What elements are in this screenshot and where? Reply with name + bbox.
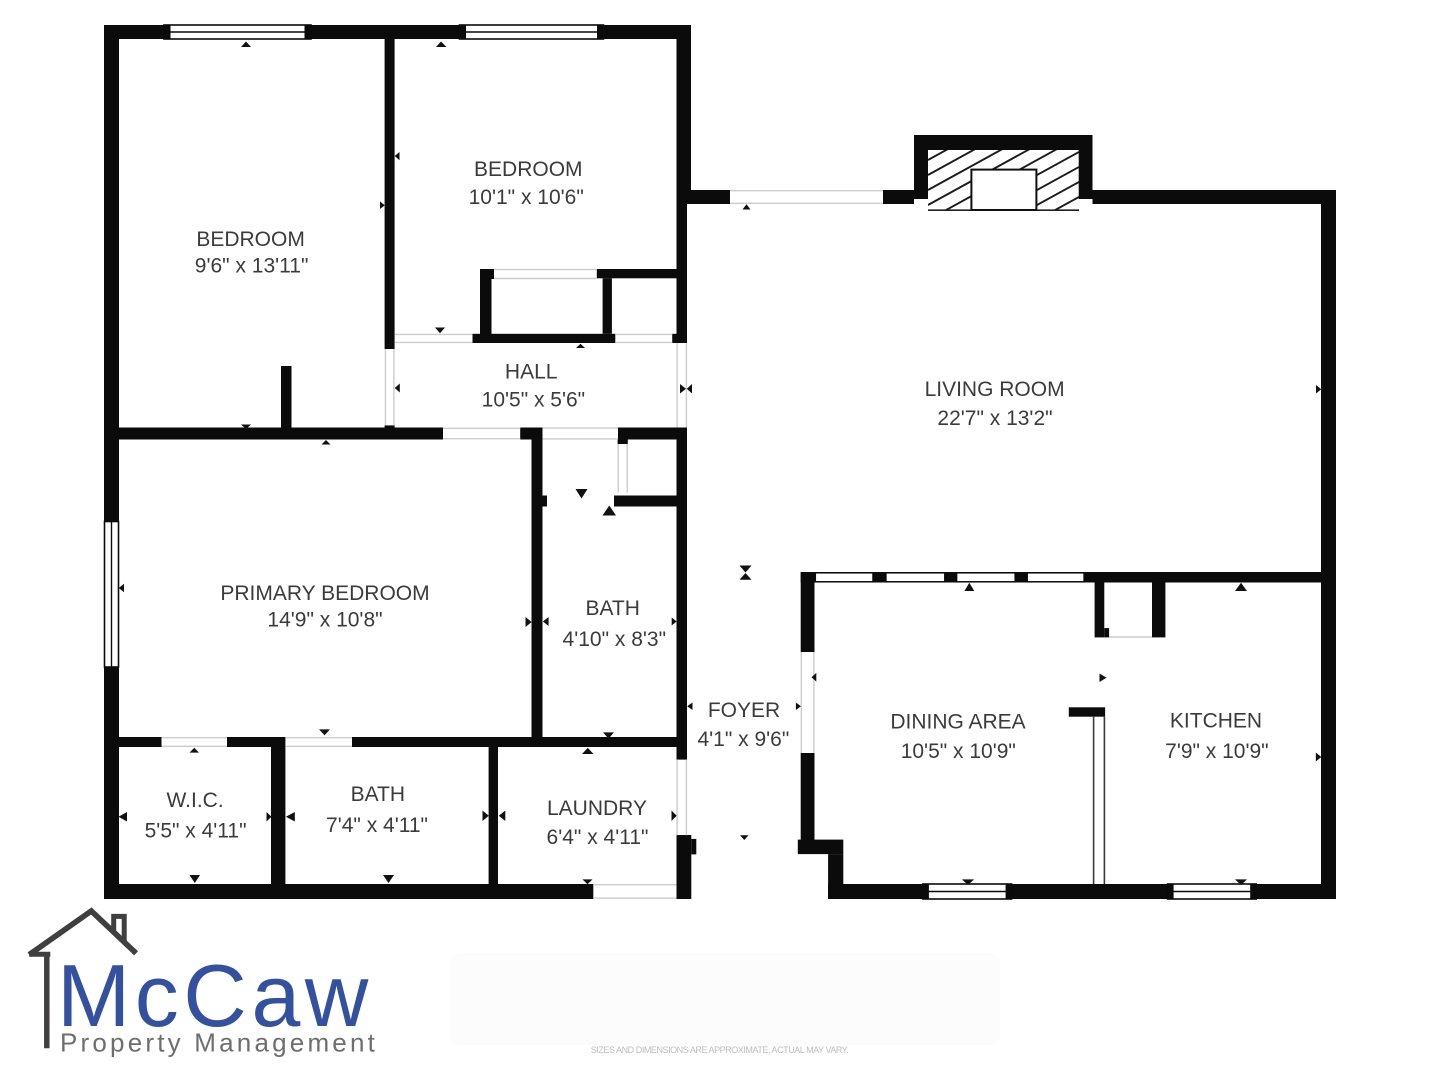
svg-text:SIZES AND DIMENSIONS ARE APPRO: SIZES AND DIMENSIONS ARE APPROXIMATE, AC… [591, 1045, 848, 1055]
svg-text:7'9" x 10'9": 7'9" x 10'9" [1165, 740, 1269, 763]
svg-text:4'1" x 9'6": 4'1" x 9'6" [697, 728, 789, 751]
svg-text:LIVING ROOM: LIVING ROOM [925, 378, 1065, 401]
svg-text:10'5" x 10'9": 10'5" x 10'9" [901, 740, 1016, 763]
svg-text:22'7" x 13'2": 22'7" x 13'2" [937, 407, 1052, 430]
svg-text:LAUNDRY: LAUNDRY [547, 797, 647, 820]
svg-text:4'10" x 8'3": 4'10" x 8'3" [563, 628, 667, 651]
svg-text:HALL: HALL [505, 361, 558, 384]
svg-text:10'1" x 10'6": 10'1" x 10'6" [469, 186, 584, 209]
svg-text:BATH: BATH [351, 783, 405, 806]
svg-text:BATH: BATH [585, 597, 639, 620]
svg-text:FOYER: FOYER [708, 699, 780, 722]
svg-text:BEDROOM: BEDROOM [196, 228, 305, 251]
svg-text:6'4" x 4'11": 6'4" x 4'11" [547, 826, 649, 849]
svg-text:5'5" x 4'11": 5'5" x 4'11" [145, 820, 247, 843]
svg-text:PRIMARY BEDROOM: PRIMARY BEDROOM [220, 582, 429, 605]
svg-text:KITCHEN: KITCHEN [1170, 710, 1262, 733]
svg-text:14'9" x 10'8": 14'9" x 10'8" [267, 609, 382, 632]
svg-text:10'5" x 5'6": 10'5" x 5'6" [482, 388, 586, 411]
svg-text:9'6" x 13'11": 9'6" x 13'11" [195, 255, 309, 278]
svg-text:DINING AREA: DINING AREA [890, 711, 1025, 734]
svg-text:W.I.C.: W.I.C. [167, 789, 224, 812]
svg-text:Property Management: Property Management [60, 1028, 378, 1058]
svg-text:7'4" x 4'11": 7'4" x 4'11" [326, 814, 428, 837]
svg-text:BEDROOM: BEDROOM [474, 158, 583, 181]
